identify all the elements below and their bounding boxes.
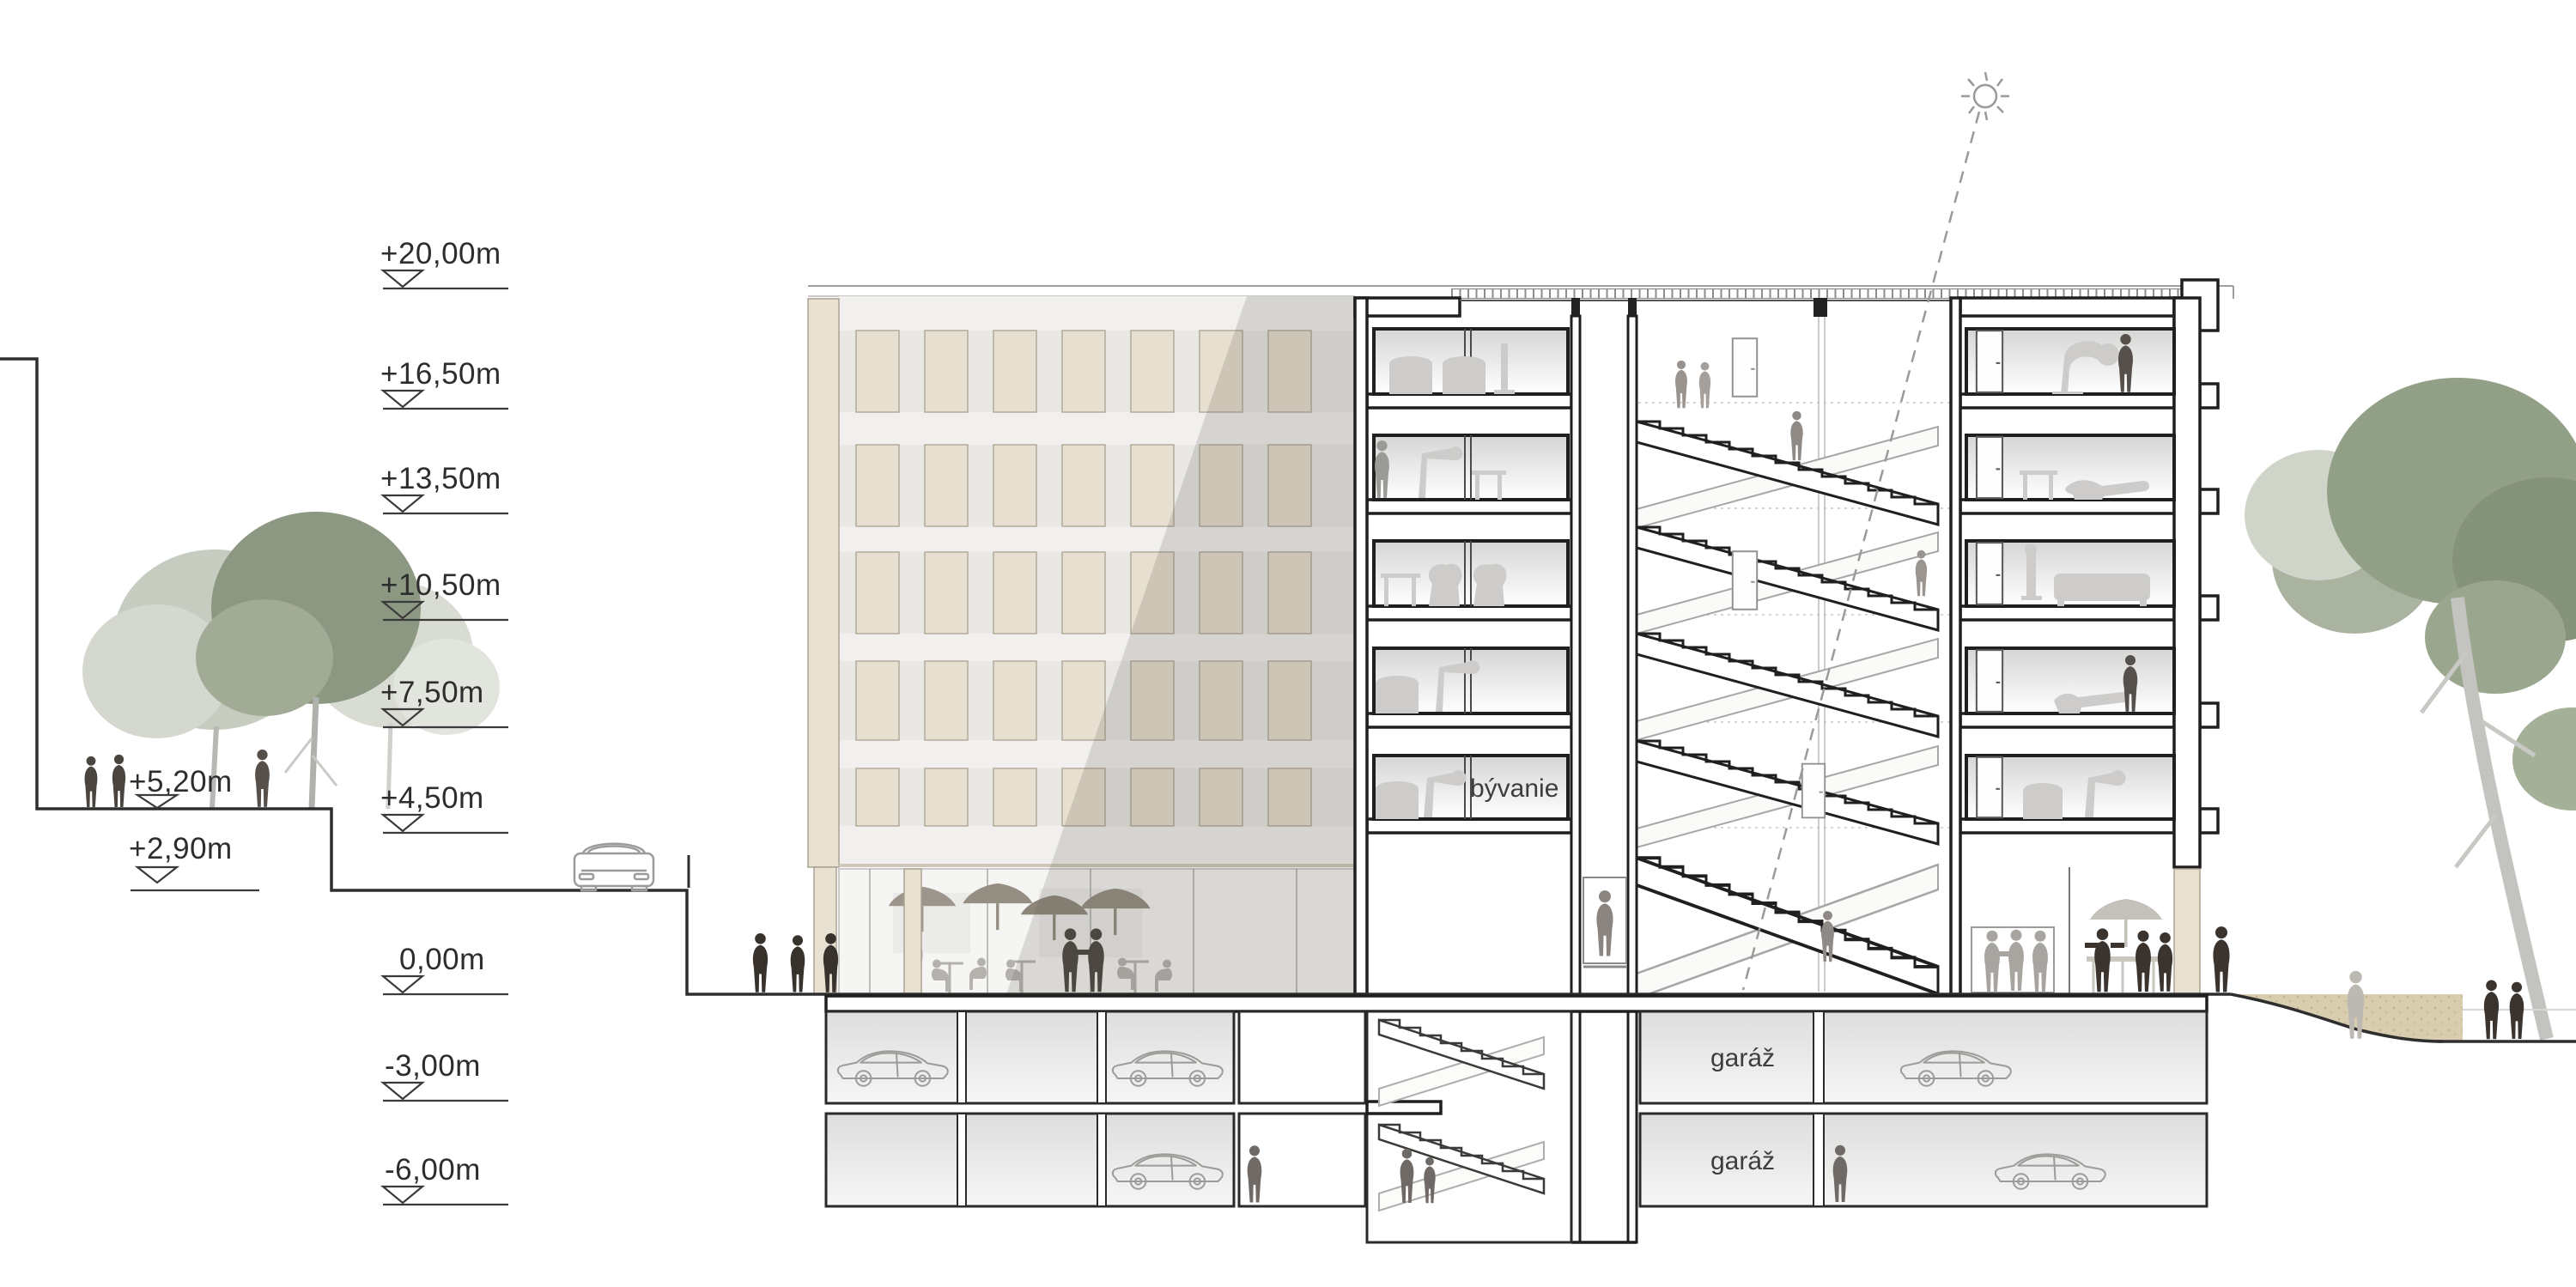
level-label: +13,50m (380, 462, 501, 495)
level-label: +7,50m (380, 676, 484, 709)
level-label: +20,00m (380, 237, 501, 270)
roof-slab-left (1355, 298, 1460, 316)
level-label: -6,00m (385, 1153, 481, 1187)
elevator-shaft (1571, 298, 1637, 1242)
lobby-people-light (1984, 930, 2048, 992)
roof-slab-right (1960, 298, 2174, 316)
level-marker: +16,50m (380, 357, 508, 409)
ground-slab (826, 996, 2207, 1011)
stair-flight (1637, 741, 1938, 847)
sun-icon (1961, 72, 2009, 120)
level-marker: +5,20m (129, 765, 233, 808)
stair-flight (1637, 634, 1938, 740)
tree-group-right (2245, 378, 2576, 1039)
level-marker: +13,50m (380, 462, 508, 513)
level-label: +5,20m (129, 765, 233, 798)
level-label: +16,50m (380, 357, 501, 391)
level-label: +4,50m (380, 781, 484, 815)
sun-ray-line (1743, 112, 1979, 990)
section-drawing-canvas: bývanie (0, 0, 2576, 1287)
garage-left-lower (826, 1114, 1234, 1206)
level-marker: 0,00m (383, 943, 508, 994)
living-room-label: bývanie (1470, 774, 1558, 803)
garage-upper-label: garáž (1710, 1044, 1775, 1072)
stair-flight (1637, 527, 1938, 634)
stair-flight (1637, 422, 1938, 528)
stair-flight (1637, 858, 1938, 999)
level-label: 0,00m (399, 943, 485, 976)
car-street (574, 844, 653, 890)
basement: garáž garáž (826, 996, 2207, 1242)
pilotis-column (904, 869, 921, 994)
garage-left-upper (826, 1011, 1234, 1103)
level-marker: -6,00m (383, 1153, 508, 1205)
garage-lower-label: garáž (1710, 1147, 1775, 1175)
level-marker: +2,90m (129, 832, 259, 890)
level-label: -3,00m (385, 1049, 481, 1083)
level-marker: -3,00m (383, 1049, 508, 1101)
level-marker: +20,00m (380, 237, 508, 288)
level-marker: +4,50m (380, 781, 508, 833)
level-label: +2,90m (129, 832, 233, 865)
section-drawing: bývanie (0, 0, 2576, 1287)
level-label: +10,50m (380, 568, 501, 602)
facade-left-pier (808, 299, 839, 867)
